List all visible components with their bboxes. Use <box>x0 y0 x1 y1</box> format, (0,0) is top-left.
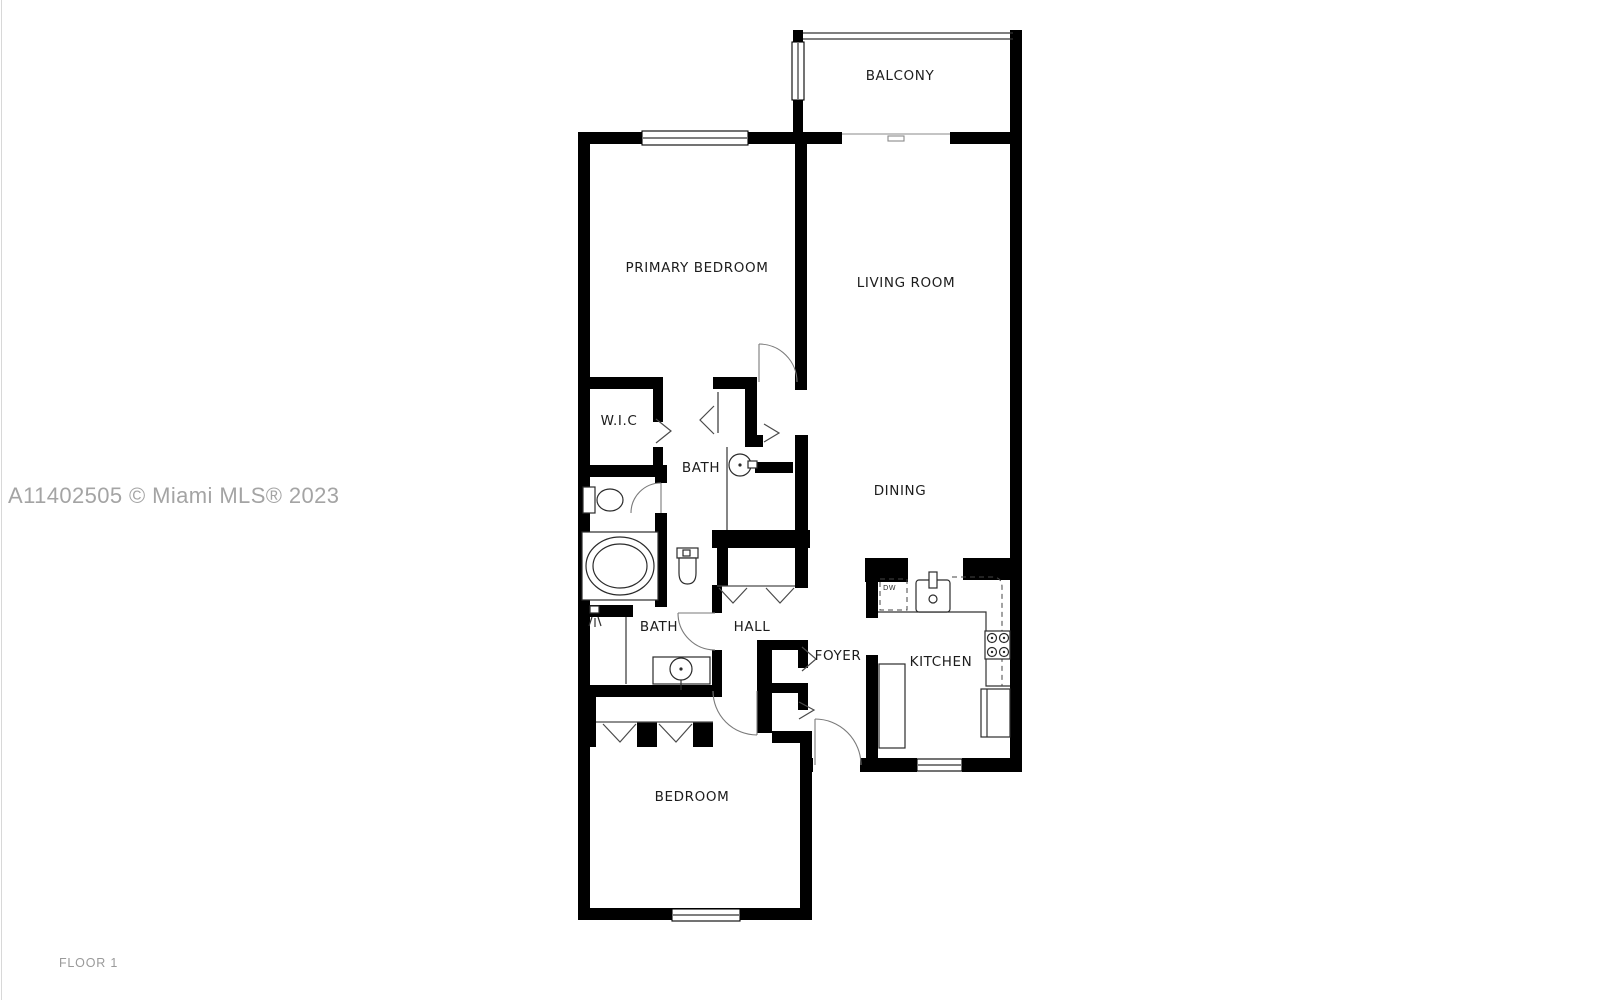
wall-segment <box>757 640 808 650</box>
room-label-kitchen: KITCHEN <box>910 654 973 670</box>
refrigerator-icon <box>981 689 1010 737</box>
wall-segment <box>1010 30 1022 772</box>
room-label-wic: W.I.C <box>601 413 638 429</box>
stove-icon <box>985 631 1010 659</box>
room-label-bedroom: BEDROOM <box>655 789 730 805</box>
floor-label: FLOOR 1 <box>59 956 118 970</box>
wall-segment <box>798 650 808 668</box>
wall-segment <box>950 132 1012 144</box>
sink-icon <box>729 454 757 476</box>
wall-segment <box>865 558 908 582</box>
bathtub-icon <box>582 532 658 600</box>
wall-segment <box>793 100 803 135</box>
room-label-hall: HALL <box>734 619 771 635</box>
wall-segment <box>962 758 1010 772</box>
wall-segment <box>866 655 878 772</box>
wall-segment <box>793 30 803 42</box>
closet-chevron <box>603 724 636 742</box>
doorway-chevron <box>656 419 671 443</box>
room-label-bath-hall: BATH <box>640 619 678 635</box>
dishwasher-icon: DW <box>880 579 907 610</box>
floor-plan-page: DW BALCONY PRIMARY BEDROOM <box>0 0 1600 1000</box>
wall-segment <box>748 132 795 144</box>
room-label-dining: DINING <box>874 483 927 499</box>
closet-chevron <box>719 588 747 603</box>
door-bedroom <box>713 691 757 735</box>
wall-segment <box>578 685 713 697</box>
wall-segment <box>745 435 763 447</box>
toilet-icon <box>677 548 698 584</box>
floor-plan-svg: DW BALCONY PRIMARY BEDROOM <box>0 0 1600 1000</box>
windows <box>642 33 1013 921</box>
wall-segment <box>578 465 667 477</box>
closet-chevron <box>766 588 794 603</box>
wall-segment <box>712 650 722 697</box>
sliding-door-panel <box>888 136 904 141</box>
kitchen-sink-icon <box>916 572 950 612</box>
wall-segment <box>712 530 810 548</box>
room-label-living-room: LIVING ROOM <box>857 275 955 291</box>
room-label-bath-primary: BATH <box>682 460 720 476</box>
wall-segment <box>637 722 657 747</box>
wall-segment <box>717 548 728 586</box>
wall-segment <box>795 435 808 588</box>
door-primary-bedroom <box>759 344 797 382</box>
wall-segment <box>772 731 812 743</box>
page-left-border <box>1 0 2 1000</box>
wall-segment <box>866 582 878 618</box>
kitchen-island <box>879 664 905 748</box>
closet-chevron <box>659 724 692 742</box>
wall-segment <box>755 462 793 473</box>
walls <box>578 30 1022 920</box>
doorway-chevron <box>764 424 779 442</box>
wall-segment <box>655 477 667 483</box>
wall-segment <box>757 640 772 733</box>
room-label-foyer: FOYER <box>815 648 862 664</box>
wall-segment <box>772 683 808 693</box>
wall-segment <box>693 722 713 747</box>
wall-segment <box>800 733 812 920</box>
room-label-balcony: BALCONY <box>866 68 935 84</box>
wall-segment <box>745 382 757 437</box>
doorway-chevron <box>700 406 714 434</box>
room-label-primary-bedroom: PRIMARY BEDROOM <box>626 260 769 276</box>
wall-segment <box>578 377 663 389</box>
wall-segment <box>795 144 807 390</box>
dishwasher-label: DW <box>883 584 896 592</box>
mls-watermark: A11402505 © Miami MLS® 2023 <box>8 483 339 508</box>
door-hall-bath <box>678 613 715 650</box>
wall-segment <box>578 132 590 920</box>
door-toilet-room <box>631 483 661 513</box>
wall-segment <box>578 132 642 144</box>
toilet-icon <box>583 487 623 513</box>
wall-segment <box>578 605 633 617</box>
wall-segment <box>578 695 596 747</box>
door-entry <box>815 719 861 765</box>
wall-segment <box>653 377 663 422</box>
wall-segment <box>798 693 808 710</box>
